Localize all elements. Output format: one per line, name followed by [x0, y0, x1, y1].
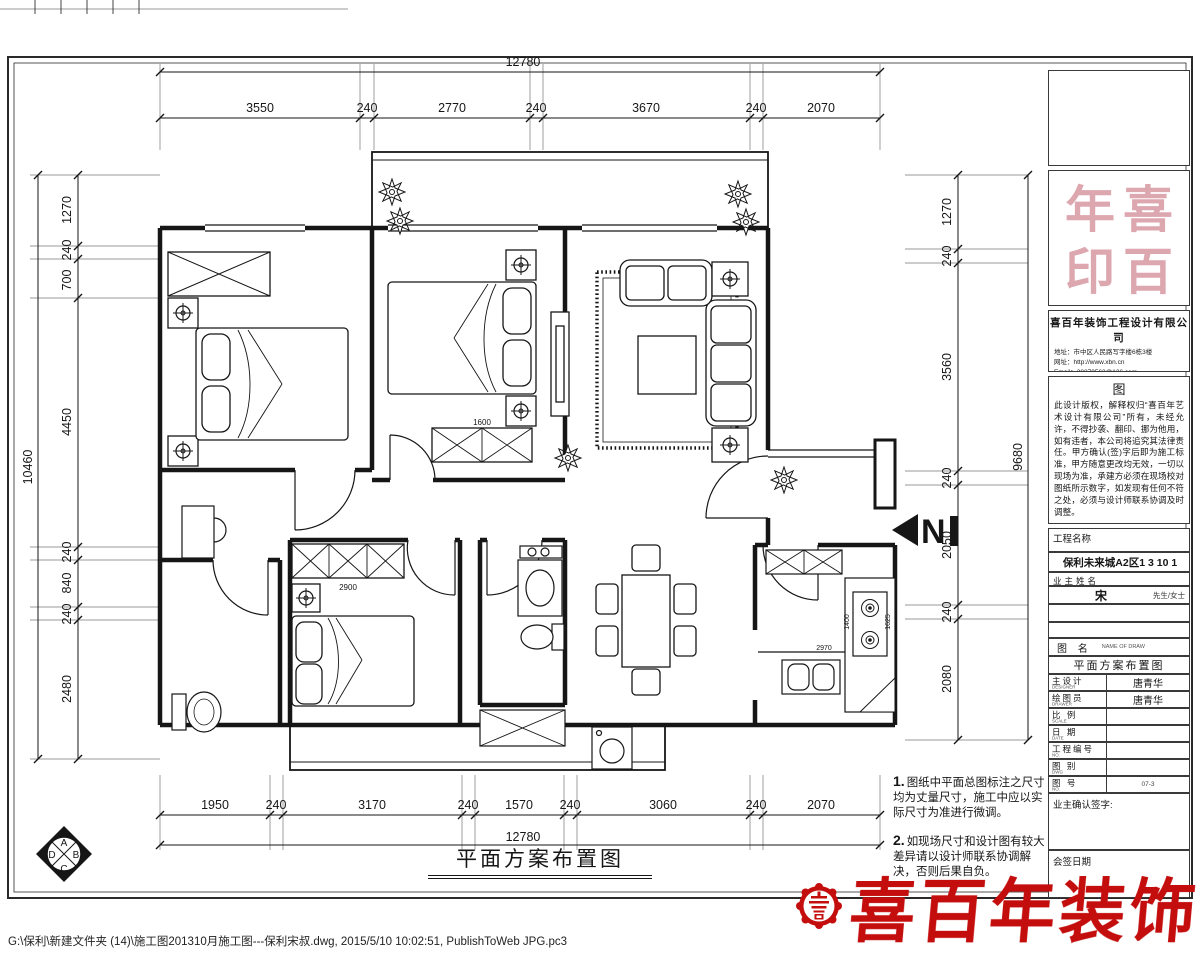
row5-value — [1107, 760, 1189, 775]
dim-bottom-2: 3170 — [358, 798, 386, 812]
windows — [205, 222, 717, 233]
dim-left-4: 240 — [60, 542, 74, 563]
dim-left-3: 4450 — [60, 408, 74, 436]
dim-right-6: 2080 — [940, 665, 954, 693]
company-seal-box: 年 喜 印 百 — [1048, 170, 1190, 306]
seal-char-0: 年 — [1061, 179, 1119, 241]
tb-row-date: 日 期DATE — [1048, 725, 1190, 742]
empty-row-1 — [1048, 604, 1190, 622]
row2-sub: SCALE — [1052, 720, 1101, 725]
dim-top-1: 240 — [357, 101, 378, 115]
owner-label: 业主姓名 — [1049, 573, 1189, 586]
title-block-empty-top — [1048, 70, 1190, 166]
row2-value — [1107, 709, 1189, 724]
dim-bottom-8: 2070 — [807, 798, 835, 812]
drawing-name: 平面方案布置图 — [1074, 657, 1165, 673]
file-path-text: G:\保利\新建文件夹 (14)\施工图201310月施工图---保利宋叔.dw… — [8, 933, 567, 949]
seal-char-3: 百 — [1119, 241, 1177, 303]
row0-sub: DESIGNER — [1052, 686, 1101, 691]
note-1-text: 图纸中平面总图标注之尺寸均为丈量尺寸，施工中应以实际尺寸为准进行微调。 — [893, 777, 1045, 819]
company-email: Email：28270563@126.com — [1054, 368, 1185, 373]
dim-right-5: 240 — [940, 602, 954, 623]
note-2-number: 2. — [893, 832, 905, 848]
row6-sub: NO. — [1052, 788, 1101, 793]
row5-sub: DWG — [1052, 771, 1101, 776]
dim-left-1: 240 — [60, 240, 74, 261]
row4-sub: NO. — [1052, 754, 1101, 759]
row3-value — [1107, 726, 1189, 741]
dim-top-0: 3550 — [246, 101, 274, 115]
empty-row-2 — [1048, 622, 1190, 638]
kitchen-fixtures — [758, 550, 895, 712]
dim-top-overall: 12780 — [506, 55, 541, 69]
company-name: 喜百年装饰工程设计有限公司 — [1049, 315, 1189, 345]
balcony-items — [592, 727, 632, 769]
row0-value: 唐青华 — [1107, 675, 1189, 690]
logo-seal-icon — [796, 860, 842, 952]
seal-char-1: 喜 — [1119, 179, 1177, 241]
row4-label: 工程编号 — [1052, 745, 1106, 754]
tb-row-scale: 比 例SCALE — [1048, 708, 1190, 725]
copyright-body: 此设计版权，解释权归“喜百年艺术设计有限公司”所有，未经允许，不得抄袭、翻印、挪… — [1054, 400, 1184, 519]
plan-title: 平面方案布置图 — [428, 843, 652, 879]
row6-value: 07-3 — [1107, 777, 1189, 792]
note-1-number: 1. — [893, 773, 905, 789]
dim-left-5: 840 — [60, 573, 74, 594]
copyright-heading: 图 — [1049, 379, 1189, 398]
row3-sub: DATE — [1052, 737, 1101, 742]
company-seal: 年 喜 印 百 — [1061, 179, 1177, 303]
dining-furniture — [596, 545, 696, 695]
master-bedroom-furniture — [168, 252, 348, 466]
tb-row-dwg-type: 图 别DWG — [1048, 759, 1190, 776]
dim-left-6: 240 — [60, 604, 74, 625]
orient-c: C — [60, 864, 67, 875]
row1-value: 唐青华 — [1107, 692, 1189, 707]
project-label-row: 工程名称 — [1048, 528, 1190, 552]
dim-right-2: 3560 — [940, 353, 954, 381]
drawing-sheet: { "sheet": { "plan_title": "平面方案布置图", "f… — [0, 0, 1200, 960]
drawing-label-row: 图 名 NAME OF DRAW — [1048, 638, 1190, 656]
note-1: 1.图纸中平面总图标注之尺寸均为丈量尺寸，施工中应以实际尺寸为准进行微调。 — [893, 772, 1045, 822]
dim-right-overall: 9680 — [1011, 443, 1025, 471]
seal-char-2: 印 — [1061, 241, 1119, 303]
orient-d: D — [48, 850, 55, 861]
dim-bottom-4: 1570 — [505, 798, 533, 812]
label-kitchen-right: 1625 — [885, 614, 892, 630]
bedroom2-furniture — [388, 250, 536, 462]
label-wardrobe-b2: 1600 — [473, 418, 491, 427]
row1-sub: DRAWER — [1052, 703, 1101, 708]
label-kitchen-bottom: 2970 — [816, 645, 832, 652]
dim-bottom-6: 3060 — [649, 798, 677, 812]
plan-labels: 1600 2900 1400 1625 2970 — [339, 418, 892, 652]
owner-label-row: 业主姓名 — [1048, 572, 1190, 586]
owner-value-row: 宋 先生/女士 — [1048, 586, 1190, 604]
bathroom1-fixtures — [172, 506, 226, 732]
company-info-box: 喜百年装饰工程设计有限公司 地址：市中区人民路写字楼6栋3楼 网址：http:/… — [1048, 310, 1190, 372]
dim-left-overall: 10460 — [21, 450, 35, 485]
tb-row-project-no: 工程编号NO. — [1048, 742, 1190, 759]
orient-a: A — [61, 838, 68, 849]
orient-b: B — [73, 850, 80, 861]
dim-left-2: 700 — [60, 270, 74, 291]
dim-left-7: 2480 — [60, 675, 74, 703]
dim-right-0: 1270 — [940, 198, 954, 226]
dim-bottom-7: 240 — [746, 798, 767, 812]
dim-top-5: 240 — [746, 101, 767, 115]
dim-bottom-overall: 12780 — [506, 830, 541, 844]
drawing-label: 图 名 — [1049, 640, 1092, 655]
project-label: 工程名称 — [1049, 529, 1189, 545]
dim-right-3: 240 — [940, 468, 954, 489]
logo-text: 喜百年装饰 — [846, 856, 1200, 957]
company-web: 网址：http://www.xbn.cn — [1054, 358, 1185, 368]
drawing-label-sub: NAME OF DRAW — [1102, 644, 1145, 650]
living-room-furniture — [551, 260, 756, 462]
dim-bottom-1: 240 — [266, 798, 287, 812]
owner-confirm-box: 业主确认签字: — [1048, 793, 1190, 850]
dim-right-1: 240 — [940, 246, 954, 267]
dim-top-3: 240 — [526, 101, 547, 115]
dim-left-0: 1270 — [60, 196, 74, 224]
dim-top-2: 2770 — [438, 101, 466, 115]
bedroom3-furniture — [292, 544, 414, 706]
tb-row-drawer: 绘图员DRAWER 唐青华 — [1048, 691, 1190, 708]
dim-bottom-3: 240 — [458, 798, 479, 812]
drawing-name-row: 平面方案布置图 — [1048, 656, 1190, 674]
owner-confirm-label: 业主确认签字: — [1049, 794, 1189, 811]
dim-bottom-5: 240 — [560, 798, 581, 812]
project-value-row: 保利未来城A2区1 3 10 1 — [1048, 552, 1190, 572]
label-wardrobe-b3: 2900 — [339, 583, 357, 592]
row4-value — [1107, 743, 1189, 758]
row6-label: 图 号 — [1052, 779, 1106, 788]
dim-top-6: 2070 — [807, 101, 835, 115]
orientation-symbol: A B C D — [36, 826, 92, 882]
label-kitchen-left: 1400 — [844, 614, 851, 630]
bathroom2-fixtures — [480, 546, 565, 746]
owner-name: 宋 — [1049, 587, 1153, 604]
tb-row-designer: 主设计DESIGNER 唐青华 — [1048, 674, 1190, 691]
north-letter: N — [921, 513, 946, 551]
company-logo: 喜百年装饰 — [796, 856, 1200, 956]
project-name: 保利未来城A2区1 3 10 1 — [1061, 555, 1177, 570]
company-address: 地址：市中区人民路写字楼6栋3楼 — [1054, 348, 1185, 358]
tb-row-dwg-no: 图 号NO. 07-3 — [1048, 776, 1190, 793]
dim-top-4: 3670 — [632, 101, 660, 115]
copyright-box: 图 此设计版权，解释权归“喜百年艺术设计有限公司”所有，未经允许，不得抄袭、翻印… — [1048, 376, 1190, 524]
title-block: 年 喜 印 百 喜百年装饰工程设计有限公司 地址：市中区人民路写字楼6栋3楼 网… — [1048, 0, 1190, 900]
owner-suffix: 先生/女士 — [1153, 590, 1189, 601]
dim-bottom-0: 1950 — [201, 798, 229, 812]
